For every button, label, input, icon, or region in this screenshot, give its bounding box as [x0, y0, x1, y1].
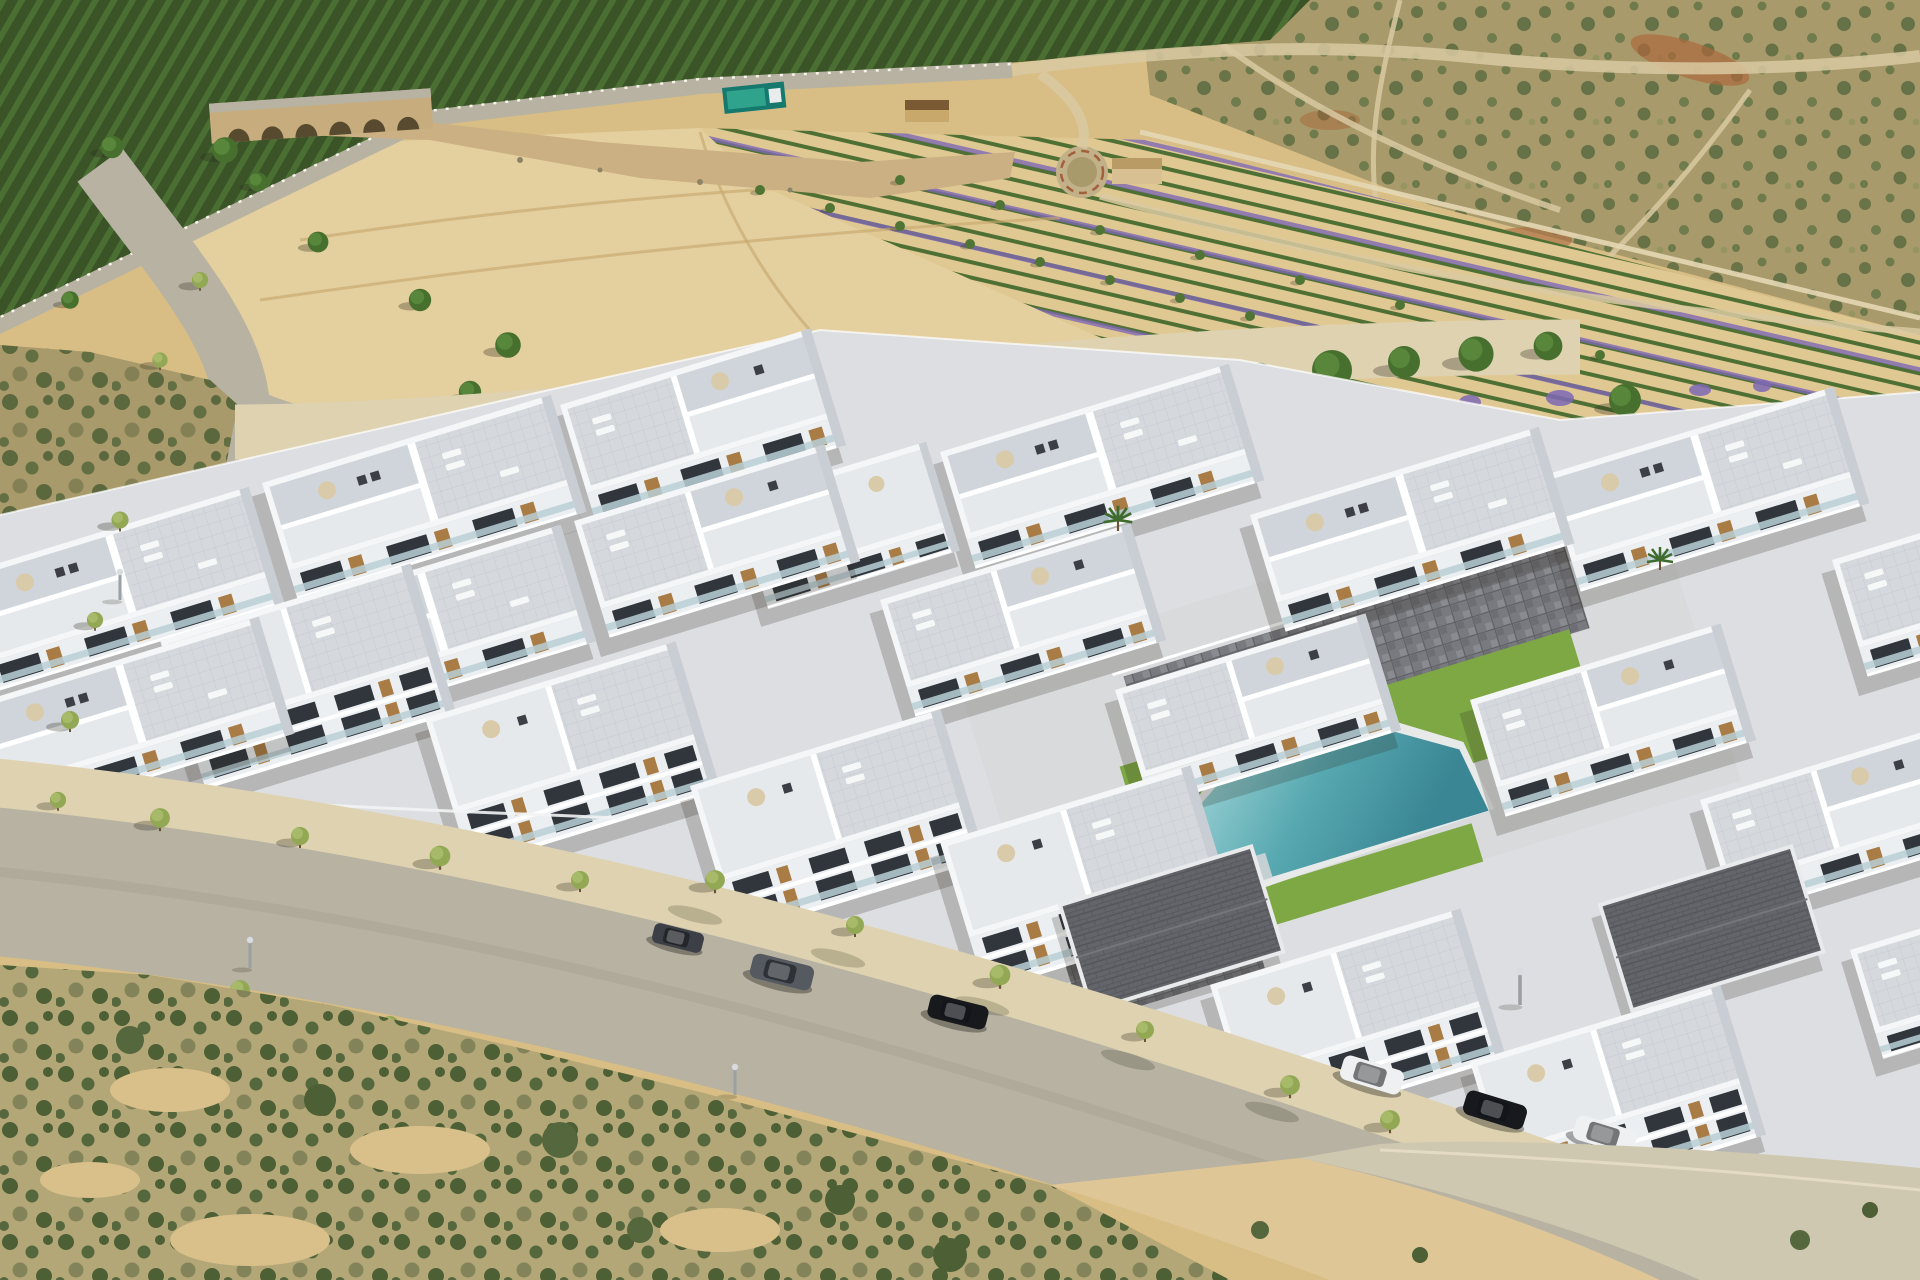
sand-patch [110, 1068, 230, 1112]
aerial-photo-stage: Aerial render of a Mediterranean new-bui… [0, 0, 1920, 1280]
roundabout [1056, 146, 1108, 198]
shed [905, 100, 949, 122]
farm-building [1112, 158, 1162, 184]
aerial-photo: Aerial render of a Mediterranean new-bui… [0, 0, 1920, 1280]
sand-patch [170, 1214, 330, 1266]
sand-patch [660, 1208, 780, 1252]
sand-patch [350, 1126, 490, 1174]
sand-patch [40, 1162, 140, 1198]
